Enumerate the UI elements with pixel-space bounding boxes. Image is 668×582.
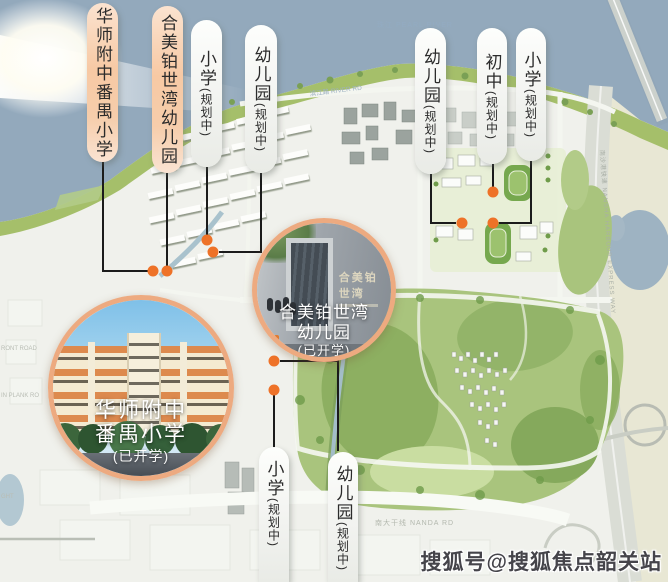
caption-status: (已开学): [53, 448, 229, 465]
pill-primary-planned-3: 小学(规划中): [259, 447, 289, 582]
building-sign: 合美铂世湾: [339, 269, 387, 307]
caption-status: (已开学): [257, 343, 391, 358]
pill-status: (规划中): [199, 88, 213, 137]
pill-label: 幼儿园: [252, 46, 271, 103]
pill-status: (规划中): [267, 498, 281, 547]
pill-status: (规划中): [423, 105, 437, 154]
pill-status: (规划中): [524, 89, 538, 138]
pill-primary-planned-1: 小学(规划中): [191, 20, 222, 167]
location-dot: [269, 356, 280, 367]
location-dot: [162, 266, 173, 277]
pill-kindergarten-planned-3: 幼儿园(规划中): [328, 452, 358, 582]
pill-huashi-fanyu-primary: 华师附中番禺小学: [87, 3, 118, 162]
pill-junior-high-planned: 初中(规划中): [477, 28, 507, 164]
location-dot: [457, 218, 468, 229]
kindergarten-photo-circle: 合美铂世湾 合美铂世湾 幼儿园 (已开学): [252, 218, 396, 362]
caption-line2: 番禺小学: [53, 423, 229, 448]
caption-line2: 幼儿园: [257, 323, 391, 343]
pill-label: 幼儿园: [421, 48, 440, 105]
pill-label: 合美铂世湾幼儿园: [158, 14, 177, 166]
pill-primary-planned-2: 小学(规划中): [516, 28, 546, 161]
location-dot: [269, 385, 280, 396]
location-dot: [488, 187, 499, 198]
schools-map-figure: 珠江 PEARL RIVER 滨江路 RIVER RD 南沙港快速 NANSHA…: [0, 0, 668, 582]
location-dot: [148, 266, 159, 277]
location-dot: [488, 218, 499, 229]
caption-line1: 华师附中: [53, 399, 229, 424]
pill-status: (规划中): [336, 522, 350, 571]
location-dot: [208, 247, 219, 258]
pill-label: 小学: [265, 460, 284, 498]
primary-school-caption: 华师附中 番禺小学 (已开学): [53, 399, 229, 465]
pill-status: (规划中): [485, 91, 499, 140]
pill-label: 初中: [483, 53, 502, 91]
primary-school-photo-circle: 华师附中 番禺小学 (已开学): [48, 295, 234, 481]
pill-label: 幼儿园: [334, 465, 353, 522]
pill-kindergarten-planned-1: 幼儿园(规划中): [245, 25, 277, 173]
pill-label: 小学: [197, 50, 216, 88]
pill-label: 小学: [522, 51, 541, 89]
sohu-watermark: 搜狐号@搜狐焦点韶关站: [421, 546, 662, 576]
caption-line1: 合美铂世湾: [257, 303, 391, 323]
pill-kindergarten-planned-2: 幼儿园(规划中): [415, 28, 446, 174]
pill-status: (规划中): [254, 103, 268, 152]
location-dot: [202, 235, 213, 246]
kindergarten-caption: 合美铂世湾 幼儿园 (已开学): [257, 303, 391, 358]
pill-hemei-boshiwan-kindergarten: 合美铂世湾幼儿园: [152, 6, 183, 173]
pill-label: 华师附中番禺小学: [93, 7, 112, 159]
